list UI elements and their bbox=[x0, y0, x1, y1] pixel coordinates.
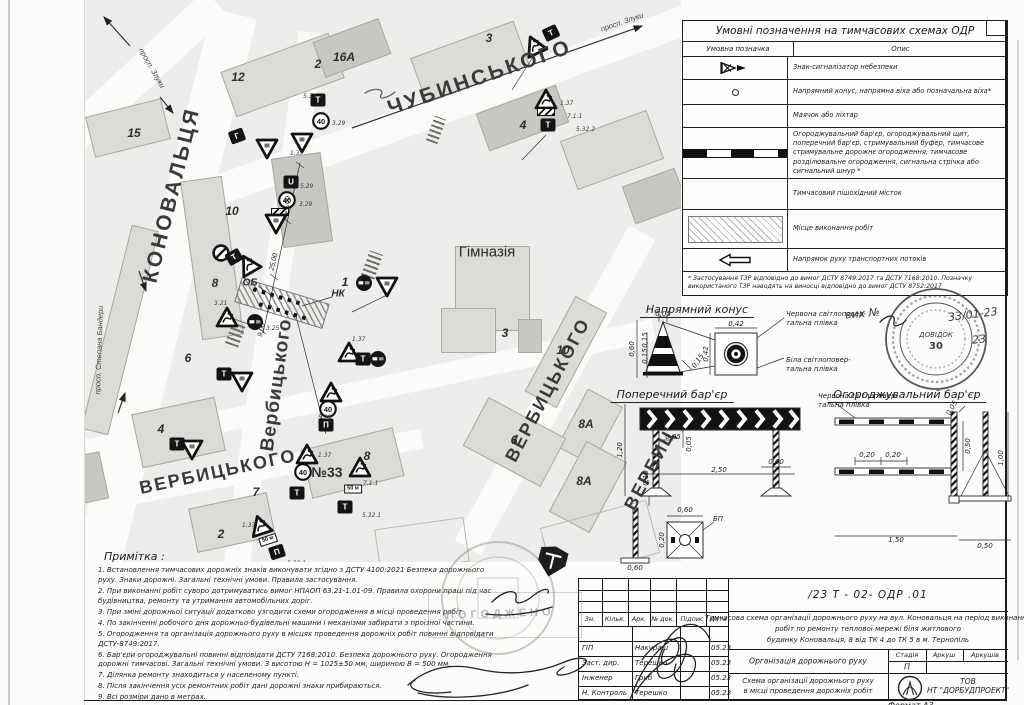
dimension-label: 0,15 bbox=[641, 348, 649, 364]
flow-arrow-icon bbox=[683, 249, 788, 271]
service-sign: Т bbox=[338, 501, 353, 514]
building bbox=[622, 168, 681, 225]
building-number: 3 bbox=[502, 326, 509, 340]
sign-code-label: 1.37 bbox=[318, 452, 331, 459]
dimension-label: 0,20 bbox=[658, 532, 666, 548]
legend-row: Тимчасовий пішохідний місток bbox=[683, 178, 1007, 209]
service-sign: Т bbox=[541, 119, 556, 132]
legend-row: Місце виконання робіт bbox=[683, 209, 1007, 248]
sign-code-label: 1.37 bbox=[560, 100, 573, 107]
building-number: 2 bbox=[315, 57, 322, 71]
role-zast: Заст. дир. bbox=[582, 659, 619, 667]
stage-label: Стадія bbox=[896, 651, 919, 659]
dimension-label: БП bbox=[713, 515, 723, 523]
role-ncontrol: Н. Контроль bbox=[582, 689, 627, 697]
give-way-sign bbox=[256, 139, 279, 160]
legend-row: Маячок або ліхтар bbox=[683, 104, 1007, 127]
building bbox=[313, 18, 392, 78]
dimension-label: 0,20 bbox=[885, 451, 901, 459]
building-number: 10 bbox=[225, 204, 238, 218]
map-label: НК bbox=[331, 289, 344, 300]
sign-code-label: 3.29 bbox=[299, 201, 312, 208]
legend-row-desc: Маячок або ліхтар bbox=[788, 105, 1007, 127]
name-gip: Накураш bbox=[635, 644, 668, 652]
film-label-white: Біла світлоповер-тальна плівка bbox=[786, 356, 851, 374]
site-plan-map: ТТТ40ГU40Т40ПТТТ40Т50 мТ50 мПЧУБИНСЬКОГО… bbox=[85, 0, 681, 562]
sign-code-label: 7.1.1 bbox=[363, 480, 378, 487]
building-number: 7 bbox=[253, 485, 260, 499]
sign-code-label: 3.25 bbox=[266, 325, 279, 332]
date-eng: 05.23 bbox=[711, 674, 731, 682]
service-sign: Т bbox=[290, 487, 305, 500]
legend-col-symbol: Умовна позначка bbox=[683, 42, 794, 56]
seal-center-text: ДОВІДОК bbox=[918, 331, 954, 339]
col-zn: Зн. bbox=[585, 615, 595, 623]
handwriting-date: 23 bbox=[971, 332, 986, 346]
date-gip: 05.23 bbox=[711, 644, 731, 652]
legend-row: Огороджувальний бар'єр, огороджувальний … bbox=[683, 127, 1007, 178]
give-way-sign bbox=[231, 372, 254, 393]
project-title-2: робіт по ремонту теплової мережі біля жи… bbox=[775, 625, 961, 635]
no-overtaking-sign bbox=[355, 274, 373, 292]
sheet-border-bottom bbox=[84, 700, 1007, 702]
roadworks-warning-sign bbox=[296, 444, 319, 465]
legend-row-desc: Огороджувальний бар'єр, огороджувальний … bbox=[788, 128, 1007, 178]
legend-row: Напрямок руху транспортних потоків bbox=[683, 248, 1007, 271]
dimension-label: 0,60 bbox=[627, 564, 643, 572]
dimension-label: 0,60 bbox=[628, 341, 636, 357]
map-label: ОБ bbox=[243, 278, 258, 289]
section-title: Організація дорожнього руху bbox=[749, 657, 867, 666]
roadworks-warning-sign bbox=[535, 89, 558, 110]
sign-code-label: 5.37 bbox=[303, 93, 316, 100]
building-number: 2 bbox=[218, 527, 225, 541]
legend-col-desc: Опис bbox=[794, 42, 1007, 56]
sign-code-label: 1.37 bbox=[290, 150, 303, 157]
title-block: Зн. Кільк. Арк. № док. Підпис Дата ГІП Н… bbox=[578, 578, 1007, 700]
note-item: 7. Ділянка ремонту знаходиться у населен… bbox=[98, 671, 496, 681]
date-ncontrol: 05.23 bbox=[711, 689, 731, 697]
dimension-label: 0,05 bbox=[685, 436, 693, 452]
name-eng: Гриб bbox=[635, 674, 652, 682]
legend-header-row: Умовна позначка Опис bbox=[683, 41, 1007, 56]
drawing-title-2: в місці проведення дорожніх робіт bbox=[744, 687, 873, 697]
format-label: Формат А3 bbox=[888, 701, 934, 705]
drawing-title-1: Схема організації дорожнього руху bbox=[742, 677, 873, 687]
legend-row-desc: Знак-сигналізатор небезпеки bbox=[788, 57, 1007, 79]
legend-title: Умовні позначення на тимчасових схемах О… bbox=[683, 21, 1007, 41]
cone-dot-icon bbox=[683, 80, 788, 104]
sign-code-label: 3.21 bbox=[214, 300, 227, 307]
striped-plate bbox=[537, 108, 555, 116]
danger-flag-icon bbox=[683, 57, 788, 79]
note-item: 9. Всі розміри дано в метрах. bbox=[98, 693, 496, 703]
svg-text:40: 40 bbox=[324, 405, 332, 414]
legend-row-desc: Напрямний конус, напрямна віха або позна… bbox=[788, 80, 1007, 104]
building-number: 16А bbox=[333, 50, 355, 64]
sign-code-label: 7.1.1 bbox=[567, 113, 582, 120]
cross-barrier-title: Поперечний бар'єр bbox=[611, 388, 734, 403]
col-pidpys: Підпис bbox=[680, 615, 703, 623]
svg-text:40: 40 bbox=[299, 468, 307, 477]
drawing-sheet: ТТТ40ГU40Т40ПТТТ40Т50 мТ50 мПЧУБИНСЬКОГО… bbox=[0, 0, 1024, 705]
building bbox=[441, 308, 496, 353]
dimension-label: 0,05 bbox=[665, 433, 681, 441]
give-way-sign bbox=[376, 277, 399, 298]
legend-row: Знак-сигналізатор небезпеки bbox=[683, 56, 1007, 79]
map-label: Гімназія bbox=[459, 244, 516, 261]
scan-fold-line bbox=[8, 0, 10, 705]
legend-row-desc: Напрямок руху транспортних потоків bbox=[788, 249, 1007, 271]
service-sign: Г bbox=[228, 127, 247, 144]
doc-number: /23 Т - 02- ОДР .01 bbox=[808, 589, 927, 601]
dimension-label: 0,42 bbox=[728, 320, 744, 328]
sign-code-label: 5.32.1 bbox=[362, 512, 381, 519]
company-line-2: НТ "ДОРБУДПРОЕКТ" bbox=[927, 686, 1009, 697]
project-title-1: Тимчасова схема організації дорожнього р… bbox=[705, 614, 1024, 624]
company-logo-icon bbox=[897, 675, 923, 701]
svg-text:40: 40 bbox=[317, 117, 325, 126]
building-number: 4 bbox=[158, 422, 165, 436]
building-number: 8А bbox=[578, 417, 593, 431]
roadworks-warning-sign bbox=[216, 307, 239, 328]
legend-row: Напрямний конус, напрямна віха або позна… bbox=[683, 79, 1007, 104]
building-number: 6 bbox=[511, 433, 518, 447]
legend-panel: Умовні позначення на тимчасових схемах О… bbox=[682, 20, 1008, 296]
dimension-label: 0,50 bbox=[964, 438, 972, 454]
dimension-label: 1,00 bbox=[997, 450, 1005, 466]
sign-code-label: 5.32.2 bbox=[576, 126, 595, 133]
give-way-sign bbox=[181, 440, 204, 461]
sheets-label: Аркушів bbox=[971, 651, 999, 659]
building bbox=[518, 319, 542, 353]
service-sign: Т bbox=[217, 368, 232, 381]
building-number: 8 bbox=[364, 449, 371, 463]
sheet-label: Аркуш bbox=[933, 651, 955, 659]
col-ndok: № док. bbox=[651, 615, 674, 623]
distance-plate: 50 м bbox=[344, 485, 362, 494]
building-number: 10 bbox=[556, 343, 569, 357]
service-sign: U bbox=[284, 176, 299, 189]
barrier-bar-icon bbox=[683, 128, 788, 178]
map-label: №33 bbox=[311, 464, 342, 480]
legend-row-desc: Тимчасовий пішохідний місток bbox=[788, 179, 1007, 209]
beacon-symbol-blank bbox=[683, 105, 788, 127]
sign-code-label: 5.29 bbox=[300, 183, 313, 190]
sign-code-label: 5.29 bbox=[318, 414, 331, 421]
name-ncontrol: Терешко bbox=[635, 689, 667, 697]
speed-limit-40-sign: 40 bbox=[312, 112, 330, 130]
building-number: 8 bbox=[212, 276, 219, 290]
building-number: 6 bbox=[185, 351, 192, 365]
seal-number-text: 30 bbox=[929, 341, 943, 352]
building-number: 8А bbox=[576, 474, 591, 488]
dimension-label: 0,50 bbox=[977, 542, 993, 550]
name-zast: Терешко bbox=[635, 659, 667, 667]
no-overtaking-sign bbox=[369, 350, 387, 368]
dimension-label: 1,20 bbox=[616, 442, 624, 458]
date-zast: 05.23 bbox=[711, 659, 731, 667]
dimension-label: 0,60 bbox=[768, 458, 784, 466]
building-number: 4 bbox=[520, 118, 527, 132]
give-way-sign bbox=[265, 214, 288, 235]
building-number: 3 bbox=[486, 31, 493, 45]
building-number: 1 bbox=[342, 275, 349, 289]
legend-row-desc: Місце виконання робіт bbox=[788, 210, 1007, 248]
project-title-3: будинку Коновальця, 8 від ТК 4 до ТК 5 в… bbox=[767, 636, 969, 646]
dimension-label: 0,60 bbox=[677, 506, 693, 514]
dimension-label: 0,42 bbox=[702, 346, 710, 362]
role-gip: ГІП bbox=[582, 644, 593, 652]
col-ark: Арк. bbox=[632, 615, 647, 623]
dimension-label: 0,05 bbox=[655, 310, 671, 318]
work-area-hatch-icon bbox=[683, 210, 788, 248]
dimension-label: 0,20 bbox=[859, 451, 875, 459]
dimension-label: 0,10 bbox=[642, 470, 650, 486]
role-eng: Інженер bbox=[582, 674, 613, 682]
dimension-label: 1,50 bbox=[888, 536, 904, 544]
building-number: 15 bbox=[127, 126, 140, 140]
stage-value: П bbox=[904, 663, 910, 672]
sign-code-label: 3.29 bbox=[332, 120, 345, 127]
col-kilk: Кільк. bbox=[605, 615, 625, 623]
building-number: 12 bbox=[231, 70, 244, 84]
sign-code-label: 1.37 bbox=[242, 522, 255, 529]
sign-code-label: 5.32.1 bbox=[287, 560, 306, 562]
dimension-label: 0,15 bbox=[641, 332, 649, 348]
scan-edge-line bbox=[1017, 40, 1019, 660]
sign-code-label: 1.37 bbox=[352, 336, 365, 343]
note-item: 8. Після закінчення усіх ремонтних робіт… bbox=[98, 682, 496, 692]
footbridge-symbol-blank bbox=[683, 179, 788, 209]
dimension-label: 2,50 bbox=[711, 466, 727, 474]
